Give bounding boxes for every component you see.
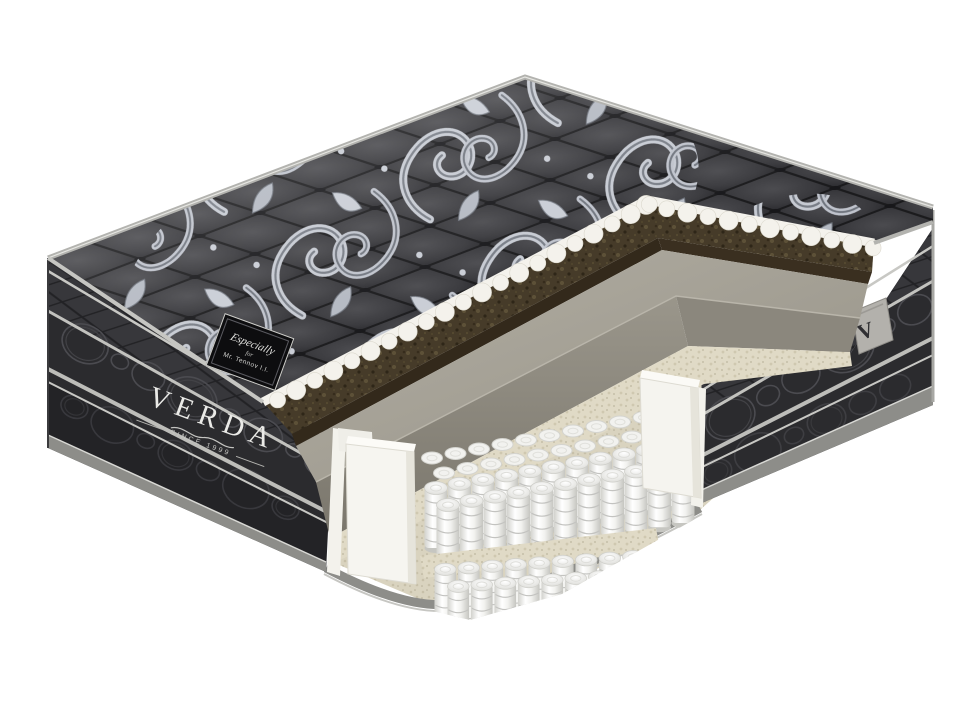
- mattress-cutaway-illustration: V: [0, 0, 960, 720]
- right-foam-rail: [640, 370, 706, 508]
- left-foam-rail: [327, 428, 416, 584]
- mattress-product-image: V: [0, 0, 960, 720]
- lower-pocket-springs: [434, 547, 691, 647]
